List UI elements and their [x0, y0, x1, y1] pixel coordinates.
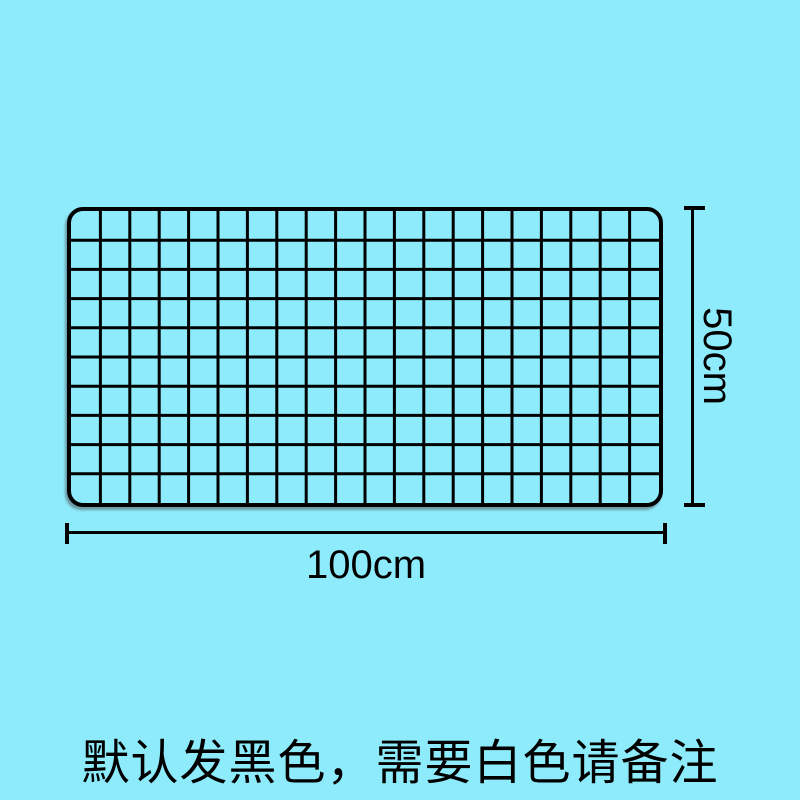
- height-label: 50cm: [697, 307, 737, 405]
- width-dimension-cap-right: [663, 523, 667, 544]
- height-dimension-line: [691, 208, 694, 507]
- height-dimension-cap-top: [684, 206, 705, 210]
- wire-mesh-panel: [67, 207, 663, 507]
- color-note-text: 默认发黑色，需要白色请备注: [0, 738, 800, 791]
- width-label: 100cm: [306, 545, 426, 585]
- height-dimension-cap-bottom: [684, 503, 705, 507]
- mesh-grid-lines: [71, 211, 659, 503]
- product-diagram: 50cm 100cm 默认发黑色，需要白色请备注: [0, 0, 800, 800]
- width-dimension-line: [67, 531, 667, 534]
- width-dimension-cap-left: [65, 523, 69, 544]
